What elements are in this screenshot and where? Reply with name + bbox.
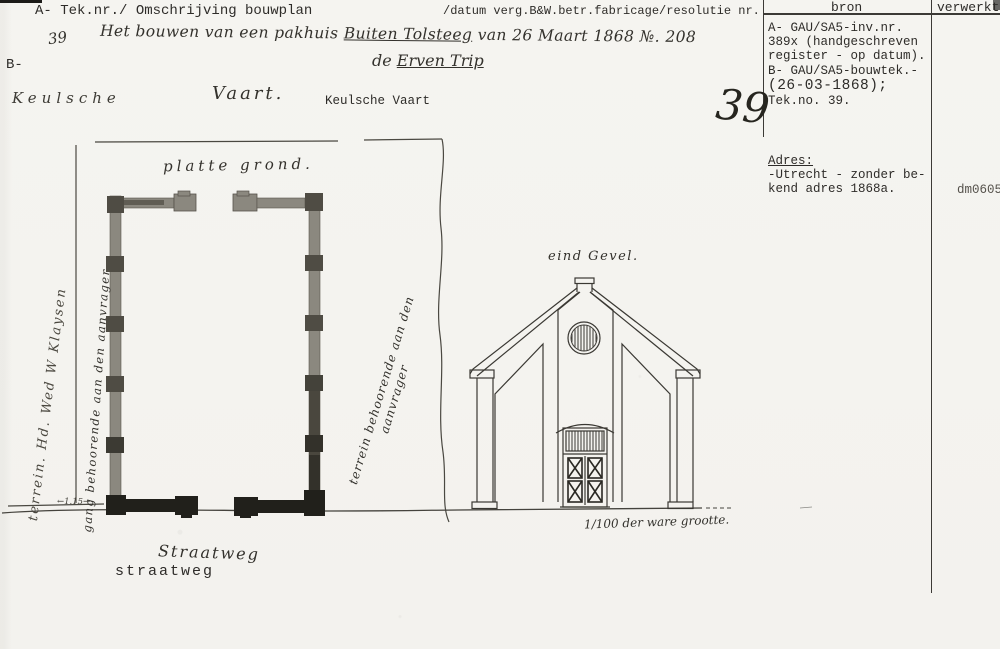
wall-left [477, 378, 493, 502]
street-label-handwritten: Straatweg [158, 541, 261, 564]
plan-top-left-wall-core [124, 200, 164, 205]
wall-base-left [472, 502, 497, 509]
floor-plan [106, 191, 325, 518]
plan-pilasters [106, 193, 323, 453]
round-louver-window [568, 320, 600, 356]
entrance-door [556, 425, 614, 508]
plan-left-wall [110, 196, 121, 512]
door-arch [556, 425, 614, 434]
sheet-edge-lines [8, 139, 449, 522]
facade-panel-right [622, 344, 670, 502]
gable-elevation [470, 278, 700, 509]
archive-card: A- Tek.nr./ Omschrijving bouwplan /datum… [0, 0, 1000, 649]
plan-doorpost-tab [237, 191, 249, 196]
roof-left-outer [470, 288, 577, 374]
plan-doorpost-tab [178, 191, 190, 196]
plan-top-doorpost-left [174, 194, 196, 211]
street-label-typed: straatweg [115, 563, 214, 580]
wall-right [677, 378, 693, 502]
roof-right-outer [592, 288, 700, 374]
elevation-label: eind Gevel. [548, 249, 639, 264]
plan-street-walls [106, 490, 325, 518]
chimney [575, 278, 594, 292]
technical-drawing [0, 0, 1000, 649]
facade-panel-left [495, 344, 543, 502]
torn-sheet-edge [439, 139, 449, 522]
plan-label: platte grond. [163, 155, 314, 176]
plan-top-right-wall [257, 198, 305, 208]
fanlight-bars [569, 431, 602, 451]
plan-top-doorpost-right [233, 194, 257, 211]
